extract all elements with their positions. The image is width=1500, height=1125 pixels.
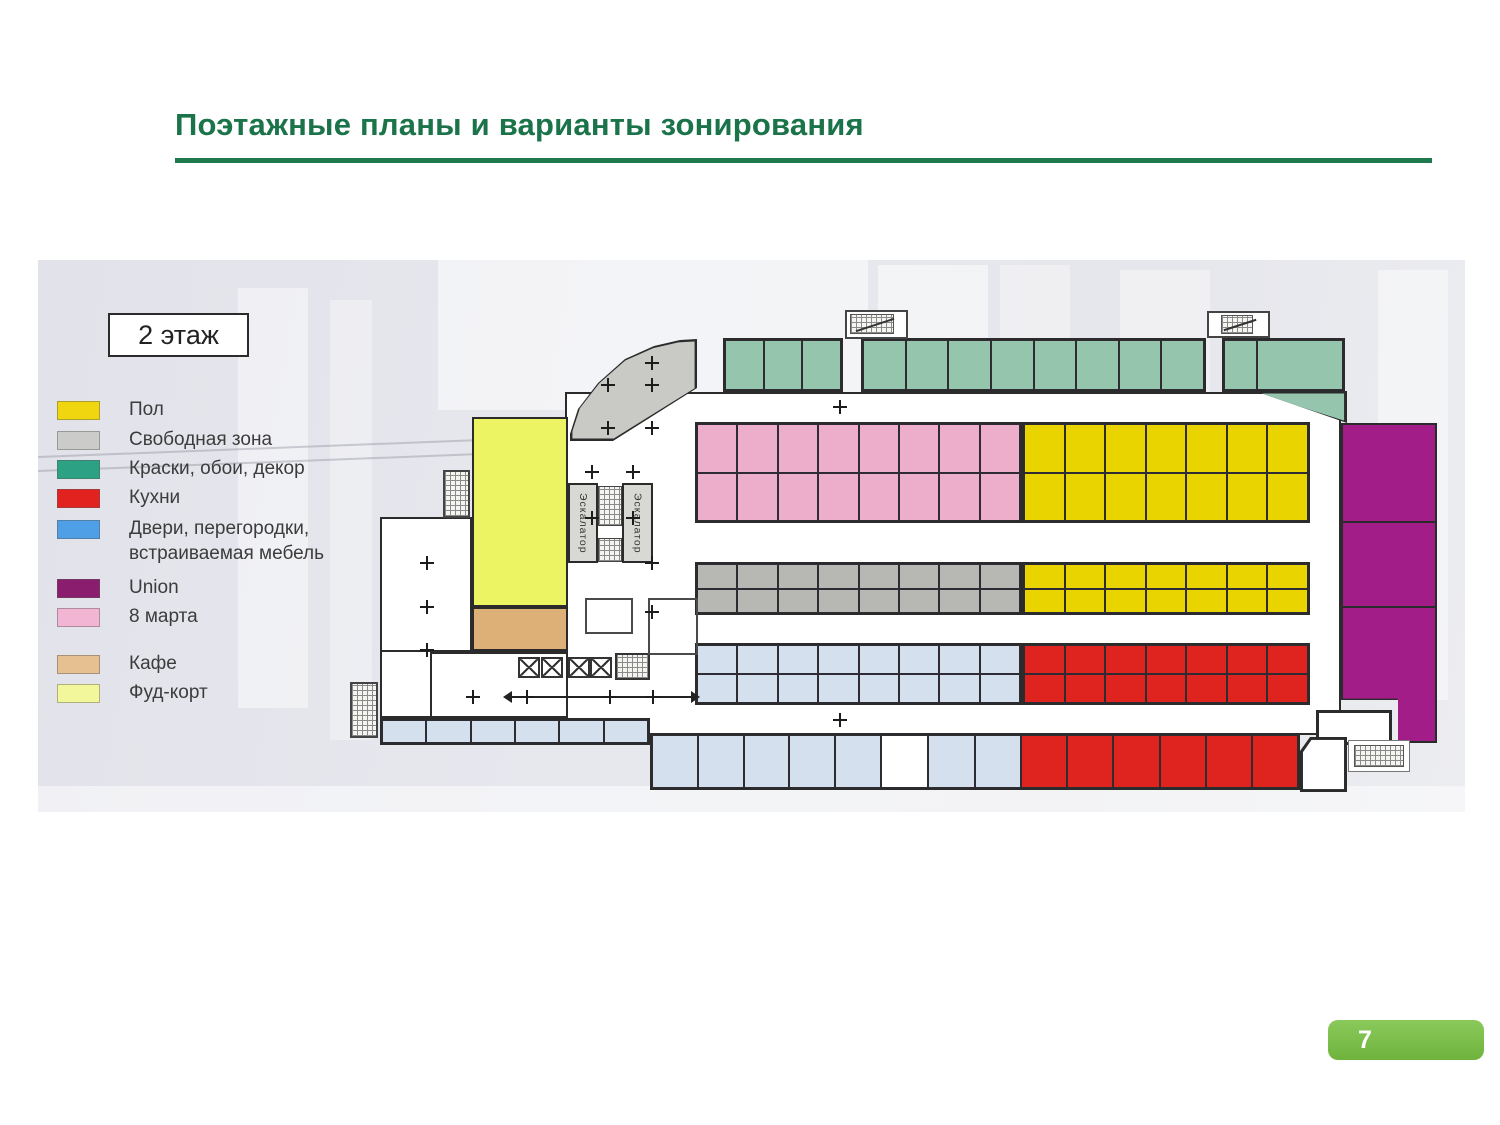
legend-label: Краски, обои, декор <box>129 457 305 482</box>
plan-cell-pol <box>1105 589 1146 614</box>
plan-cell-free <box>737 564 777 589</box>
legend-label: Двери, перегородки, встраиваемая мебель <box>129 517 365 566</box>
legend-swatch-doors <box>57 520 100 539</box>
column-cross-marker <box>520 690 534 704</box>
plan-cell-pol <box>1105 473 1146 522</box>
legend-swatch-kitchens <box>57 489 100 508</box>
plan-cell-doors <box>928 735 975 788</box>
plan-cell-pol <box>1024 473 1065 522</box>
legend-item-paints: Краски, обои, декор <box>57 457 305 482</box>
plan-cell-doors <box>737 645 777 674</box>
plan-cell-doors <box>426 720 470 743</box>
column-cross-marker <box>466 690 480 704</box>
legend-swatch-cafe <box>57 655 100 674</box>
stairs-icon <box>845 310 908 339</box>
plan-cell-march8 <box>697 424 737 473</box>
plan-cell-march8 <box>980 424 1020 473</box>
plan-cell-pol <box>1186 564 1227 589</box>
plan-cell-pol <box>1186 589 1227 614</box>
plan-cell-paints <box>1257 340 1343 390</box>
plan-cell-doors <box>698 735 744 788</box>
column-cross-marker <box>585 465 599 479</box>
pentagon-fill <box>1303 740 1344 790</box>
plan-cell-pol <box>1105 564 1146 589</box>
legend-label: Union <box>129 576 179 601</box>
legend-swatch-pol <box>57 401 100 420</box>
plan-cell-march8 <box>899 473 939 522</box>
plan-cell-white <box>881 735 928 788</box>
plan-cell-pol <box>1267 589 1308 614</box>
plan-cell-paints <box>1076 340 1119 390</box>
plan-cell-kitchens <box>1267 645 1308 674</box>
plan-cell-pol <box>1227 473 1268 522</box>
zone-foodcourt <box>472 417 568 607</box>
column-cross-marker <box>833 713 847 727</box>
plan-cell-kitchens <box>1252 735 1298 788</box>
plan-cell-kitchens <box>1113 735 1159 788</box>
zone-union <box>1343 425 1435 741</box>
legend-swatch-free <box>57 431 100 450</box>
plan-cell-march8 <box>859 473 899 522</box>
legend-swatch-union <box>57 579 100 598</box>
plan-cell-doors <box>939 645 979 674</box>
plan-cell-doors <box>778 674 818 703</box>
plan-cell-doors <box>737 674 777 703</box>
plan-cell-doors <box>859 645 899 674</box>
plan-cell-paints <box>1161 340 1204 390</box>
zone-union-outline <box>1341 423 1437 743</box>
plan-cell-free <box>818 564 858 589</box>
plan-cell-paints <box>1034 340 1077 390</box>
arrow-head-right-icon <box>691 691 700 703</box>
plan-cell-free <box>899 564 939 589</box>
plan-cell-free <box>778 564 818 589</box>
zone-union-divider <box>1341 521 1437 523</box>
column-cross-marker <box>645 605 659 619</box>
plan-cell-kitchens <box>1186 674 1227 703</box>
elevator-icon <box>590 657 612 678</box>
plan-cell-doors <box>899 674 939 703</box>
plan-cell-pol <box>1065 589 1106 614</box>
plan-cell-pol <box>1227 424 1268 473</box>
zone-doors-strip-left <box>380 718 650 745</box>
arrow-bar <box>509 696 694 698</box>
interior-room <box>585 598 633 634</box>
plan-cell-march8 <box>980 473 1020 522</box>
zone-union-divider <box>1341 606 1437 608</box>
column-cross-marker <box>646 690 660 704</box>
zone-free-block <box>695 562 1022 615</box>
plan-cell-free <box>939 589 979 614</box>
plan-cell-march8 <box>939 424 979 473</box>
plan-cell-doors <box>859 674 899 703</box>
zone-doors-strip-b2 <box>928 735 1021 788</box>
column-cross-marker <box>626 465 640 479</box>
plan-cell-march8 <box>818 473 858 522</box>
plan-cell-kitchens <box>1105 645 1146 674</box>
plan-cell-free <box>778 589 818 614</box>
elevator-icon <box>541 657 563 678</box>
zone-kitchens-strip <box>1021 735 1298 788</box>
plan-cell-kitchens <box>1206 735 1252 788</box>
plan-cell-doors <box>382 720 426 743</box>
column-cross-marker <box>645 356 659 370</box>
column-cross-marker <box>645 556 659 570</box>
stairs-icon <box>443 470 470 518</box>
column-cross-marker <box>603 690 617 704</box>
plan-cell-doors <box>980 645 1020 674</box>
plan-cell-pol <box>1267 424 1308 473</box>
legend-swatch-march8 <box>57 608 100 627</box>
legend-item-kitchens: Кухни <box>57 486 180 511</box>
plan-cell-kitchens <box>1227 674 1268 703</box>
plan-cell-paints <box>725 340 764 390</box>
plan-cell-paints <box>1224 340 1257 390</box>
floorplan-panel: 2 этаж Пол Свободная зона Краски, обои, … <box>38 260 1465 812</box>
elevator-icon <box>518 657 540 678</box>
plan-cell-doors <box>744 735 790 788</box>
legend-item-foodcourt: Фуд-корт <box>57 681 208 706</box>
plan-cell-pol <box>1146 589 1187 614</box>
plan-cell-march8 <box>778 473 818 522</box>
plan-cell-free <box>859 589 899 614</box>
column-cross-marker <box>420 643 434 657</box>
plan-cell-kitchens <box>1146 674 1187 703</box>
plan-cell-pol <box>1065 424 1106 473</box>
plan-cell-pol <box>1267 564 1308 589</box>
zone-paints-row-b <box>861 338 1206 392</box>
plan-cell-doors <box>980 674 1020 703</box>
stairs-icon <box>350 682 378 738</box>
stairs-hatch <box>1354 745 1404 767</box>
plan-cell-paints <box>764 340 803 390</box>
plan-cell-doors <box>939 674 979 703</box>
bottom-strip <box>650 733 1300 790</box>
plan-cell-free <box>980 564 1020 589</box>
plan-cell-pol <box>1146 424 1187 473</box>
plan-cell-free <box>899 589 939 614</box>
column-cross-marker <box>626 511 640 525</box>
zone-pol-block-2 <box>1022 562 1310 615</box>
legend-label: Кухни <box>129 486 180 511</box>
zone-kitchens-block <box>1022 643 1310 705</box>
column-cross-marker <box>601 421 615 435</box>
plan-cell-doors <box>652 735 698 788</box>
plan-cell-kitchens <box>1160 735 1206 788</box>
column-cross-marker <box>601 378 615 392</box>
plan-cell-kitchens <box>1067 735 1113 788</box>
legend-item-cafe: Кафе <box>57 652 177 677</box>
plan-cell-pol <box>1227 564 1268 589</box>
plan-cell-free <box>697 589 737 614</box>
title-underline <box>175 158 1432 163</box>
plan-cell-kitchens <box>1105 674 1146 703</box>
plan-cell-pol <box>1227 589 1268 614</box>
plan-cell-kitchens <box>1024 674 1065 703</box>
zone-pol-block-1 <box>1022 422 1310 523</box>
zone-paints-row-c <box>1222 338 1345 392</box>
slide: Поэтажные планы и варианты зонирования 2… <box>0 0 1500 1125</box>
plan-cell-pol <box>1186 424 1227 473</box>
legend-label: Пол <box>129 398 164 423</box>
plan-cell-doors <box>604 720 648 743</box>
legend-label: Свободная зона <box>129 428 272 453</box>
escalator-shaft-icon <box>598 486 622 526</box>
elevator-icon <box>568 657 590 678</box>
plan-cell-paints <box>948 340 991 390</box>
plan-cell-doors <box>697 674 737 703</box>
plan-cell-paints <box>1119 340 1162 390</box>
plan-cell-paints <box>991 340 1034 390</box>
plan-cell-march8 <box>939 473 979 522</box>
plan-cell-doors <box>471 720 515 743</box>
plan-cell-doors <box>789 735 835 788</box>
floor-label: 2 этаж <box>108 313 249 357</box>
plan-cell-kitchens <box>1146 645 1187 674</box>
plan-cell-kitchens <box>1227 645 1268 674</box>
legend-item-union: Union <box>57 576 179 601</box>
plan-cell-doors <box>818 674 858 703</box>
plan-cell-free <box>818 589 858 614</box>
plan-cell-doors <box>899 645 939 674</box>
column-cross-marker <box>645 421 659 435</box>
column-cross-marker <box>833 400 847 414</box>
floor-label-text: 2 этаж <box>138 320 219 351</box>
plan-cell-pol <box>1267 473 1308 522</box>
plan-cell-free <box>859 564 899 589</box>
plan-cell-paints <box>906 340 949 390</box>
plan-cell-doors <box>778 645 818 674</box>
legend-item-free: Свободная зона <box>57 428 272 453</box>
plan-cell-march8 <box>697 473 737 522</box>
zone-cafe <box>472 607 568 652</box>
plan-cell-pol <box>1186 473 1227 522</box>
arrow-head-left-icon <box>503 691 512 703</box>
stairs-icon <box>1348 740 1410 772</box>
plan-cell-kitchens <box>1065 645 1106 674</box>
zone-doors-strip-b1 <box>652 735 881 788</box>
plan-cell-march8 <box>899 424 939 473</box>
column-cross-marker <box>645 378 659 392</box>
plan-cell-pol <box>1024 589 1065 614</box>
strip-white-cell <box>881 735 928 788</box>
plan-cell-free <box>697 564 737 589</box>
plan-cell-paints <box>802 340 841 390</box>
column-cross-marker <box>420 556 434 570</box>
plan-cell-march8 <box>778 424 818 473</box>
plan-cell-pol <box>1105 424 1146 473</box>
zone-doors-block <box>695 643 1022 705</box>
page-title: Поэтажные планы и варианты зонирования <box>175 107 864 143</box>
plan-cell-free <box>939 564 979 589</box>
plan-cell-kitchens <box>1267 674 1308 703</box>
plan-cell-doors <box>697 645 737 674</box>
legend-item-pol: Пол <box>57 398 164 423</box>
column-cross-marker <box>420 600 434 614</box>
plan-cell-kitchens <box>1186 645 1227 674</box>
legend-swatch-paints <box>57 460 100 479</box>
stairs-icon <box>615 653 650 680</box>
zone-march8-block <box>695 422 1022 523</box>
plan-cell-doors <box>818 645 858 674</box>
legend-item-doors: Двери, перегородки, встраиваемая мебель <box>57 517 365 566</box>
zone-paints-row-a <box>723 338 843 392</box>
plan-cell-doors <box>559 720 603 743</box>
legend-swatch-foodcourt <box>57 684 100 703</box>
plan-cell-kitchens <box>1024 645 1065 674</box>
plan-cell-pol <box>1065 564 1106 589</box>
plan-cell-march8 <box>818 424 858 473</box>
plan-cell-doors <box>975 735 1022 788</box>
legend-label: Кафе <box>129 652 177 677</box>
page-number-badge: 7 <box>1328 1020 1484 1060</box>
plan-cell-pol <box>1146 473 1187 522</box>
plan-cell-march8 <box>737 424 777 473</box>
legend-item-march8: 8 марта <box>57 605 198 630</box>
bottom-right-pentagon-room <box>1300 737 1347 792</box>
plan-cell-paints <box>863 340 906 390</box>
plan-cell-march8 <box>737 473 777 522</box>
plan-cell-free <box>737 589 777 614</box>
plan-cell-kitchens <box>1021 735 1067 788</box>
legend-label: Фуд-корт <box>129 681 208 706</box>
stairs-icon <box>1207 311 1270 338</box>
page-number: 7 <box>1328 1020 1484 1060</box>
plan-cell-march8 <box>859 424 899 473</box>
plan-cell-pol <box>1024 424 1065 473</box>
plan-cell-pol <box>1146 564 1187 589</box>
plan-cell-pol <box>1065 473 1106 522</box>
legend-label: 8 марта <box>129 605 198 630</box>
plan-cell-kitchens <box>1065 674 1106 703</box>
plan-cell-free <box>980 589 1020 614</box>
plan-cell-doors <box>515 720 559 743</box>
column-cross-marker <box>585 511 599 525</box>
plan-cell-doors <box>835 735 881 788</box>
plan-cell-pol <box>1024 564 1065 589</box>
escalator-shaft-icon <box>598 538 622 562</box>
